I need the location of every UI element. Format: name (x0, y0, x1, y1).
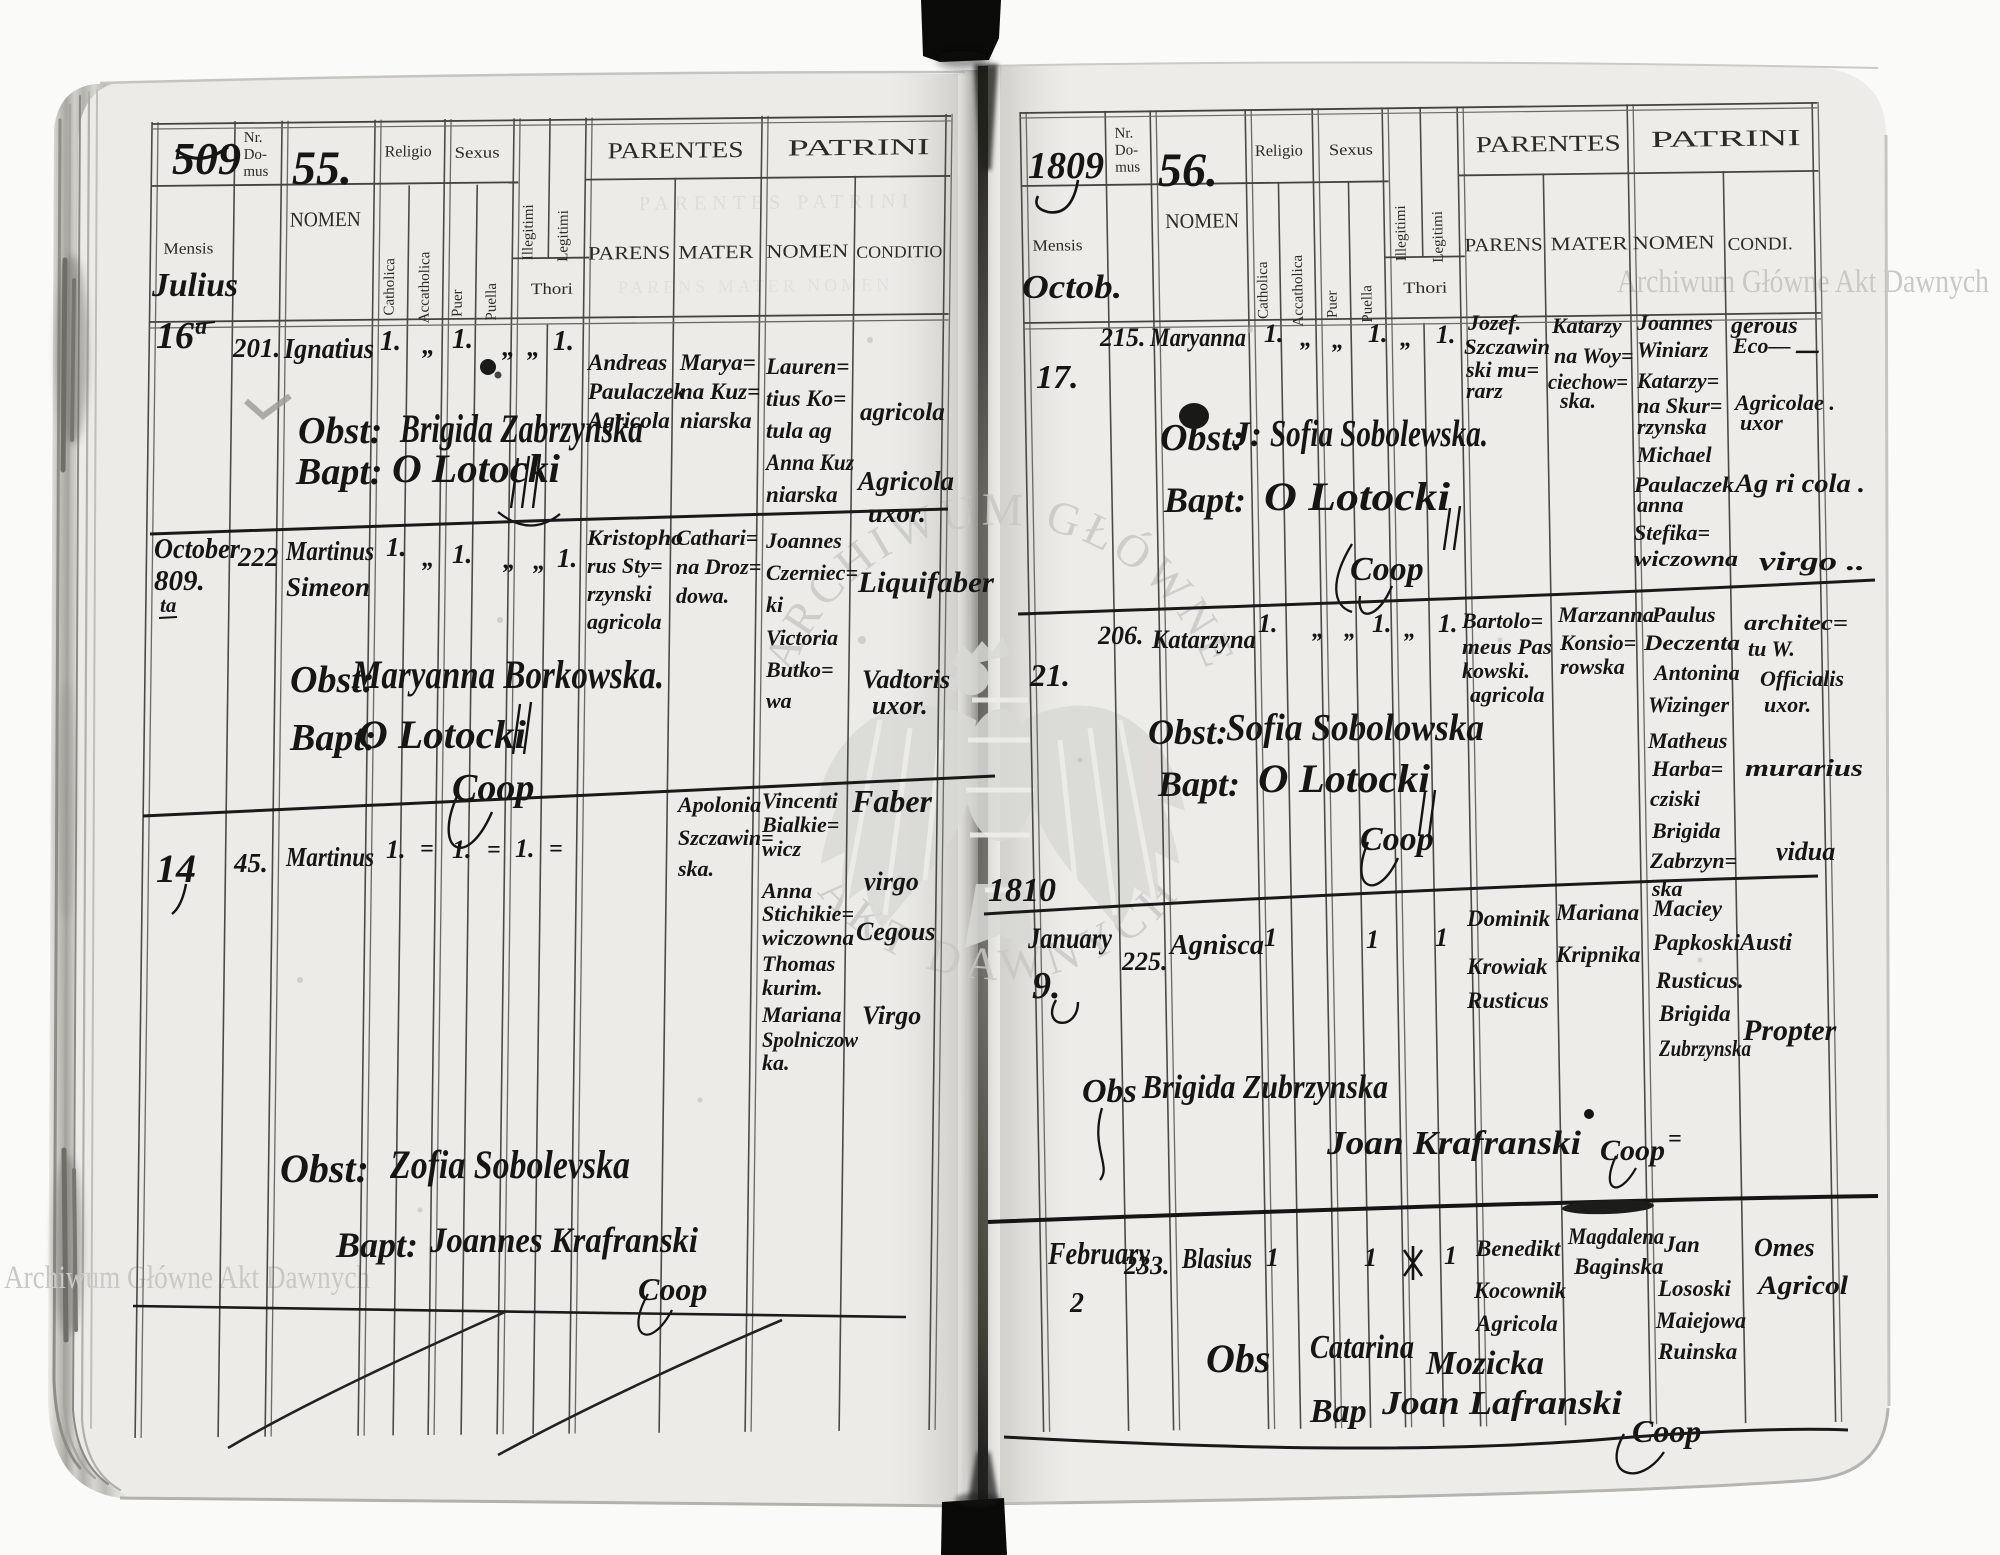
svg-text:Obs: Obs (1082, 1073, 1137, 1110)
svg-text:PARENS MATER NOMEN: PARENS MATER NOMEN (618, 274, 894, 297)
svg-text:Maryanna: Maryanna (1149, 323, 1246, 352)
svg-text:„: „ (1400, 326, 1412, 352)
svg-text:PARENS: PARENS (588, 243, 670, 265)
svg-text:Kripnika: Kripnika (1555, 942, 1640, 967)
svg-text:Puer: Puer (450, 289, 466, 317)
svg-text:1.: 1. (386, 835, 406, 864)
svg-text:Stichikie=: Stichikie= (762, 901, 854, 926)
svg-text:14: 14 (156, 846, 196, 891)
svg-text:Nr.: Nr. (244, 130, 263, 146)
svg-text:Jozef.: Jozef. (1467, 310, 1521, 335)
svg-text:1.: 1. (1368, 319, 1388, 348)
svg-text:kowski.: kowski. (1462, 658, 1530, 683)
svg-text:„: „ (1300, 326, 1312, 352)
svg-text:„: „ (422, 545, 435, 572)
svg-text:Zofia Sobolevska: Zofia Sobolevska (389, 1142, 630, 1187)
svg-text:Szczawin=: Szczawin= (678, 825, 774, 850)
svg-text:Illegitimi: Illegitimi (1393, 205, 1410, 261)
svg-text:21.: 21. (1029, 657, 1070, 693)
svg-text:Marya=: Marya= (679, 350, 756, 375)
svg-text:uxor.: uxor. (868, 498, 926, 528)
svg-text:Zabrzyn=: Zabrzyn= (1649, 848, 1737, 873)
svg-text:1.: 1. (553, 326, 574, 357)
svg-text:Szczawin: Szczawin (1464, 334, 1550, 359)
svg-text:Agricola: Agricola (856, 466, 954, 496)
svg-text:Blasius: Blasius (1181, 1244, 1252, 1275)
svg-text:Baginska: Baginska (1573, 1254, 1663, 1279)
svg-text:Bapt:: Bapt: (335, 1225, 418, 1265)
svg-text:agricola: agricola (587, 609, 662, 634)
svg-text:Cegous: Cegous (856, 917, 935, 946)
svg-text:Brigida Zubrzynska: Brigida Zubrzynska (1141, 1069, 1388, 1106)
svg-text:uxor.: uxor. (1764, 692, 1811, 717)
svg-text:Joannes Krafranski: Joannes Krafranski (429, 1220, 698, 1260)
svg-text:„: „ (502, 333, 515, 362)
svg-text:225.: 225. (1121, 947, 1168, 976)
svg-text:cziski: cziski (1650, 786, 1701, 811)
svg-text:Antonina: Antonina (1652, 660, 1740, 685)
svg-text:Mariana: Mariana (1555, 900, 1639, 925)
svg-text:Vadtoris: Vadtoris (862, 665, 950, 694)
svg-text:Nr.: Nr. (1114, 126, 1133, 142)
svg-text:Coop: Coop (638, 1271, 707, 1307)
svg-text:Czerniec=: Czerniec= (766, 560, 858, 585)
svg-text:NOMEN: NOMEN (1632, 232, 1715, 254)
svg-text:„: „ (527, 333, 540, 362)
svg-text:Bapt:: Bapt: (1163, 480, 1246, 520)
svg-text:16ª: 16ª (156, 315, 207, 357)
svg-text:Victoria: Victoria (766, 625, 838, 650)
svg-text:CONDITIO: CONDITIO (856, 242, 942, 262)
svg-text:201.: 201. (232, 333, 280, 363)
svg-text:uxor: uxor (1740, 410, 1783, 435)
svg-text:„: „ (1344, 617, 1356, 643)
svg-text:Matheus: Matheus (1647, 728, 1727, 753)
svg-text:45.: 45. (233, 848, 268, 878)
svg-text:Katarzyna: Katarzyna (1151, 625, 1256, 654)
svg-text:Propter: Propter (1742, 1014, 1837, 1047)
svg-text:Joannes: Joannes (765, 528, 842, 553)
svg-text:Apolonia: Apolonia (676, 792, 761, 817)
svg-text:Simeon: Simeon (286, 572, 370, 602)
svg-text:Do-: Do- (244, 147, 268, 163)
svg-text:1810: 1810 (988, 872, 1056, 909)
svg-text:wiczowna: wiczowna (762, 925, 854, 950)
svg-text:Deczenta: Deczenta (1643, 630, 1740, 655)
svg-text:January: January (1027, 922, 1112, 955)
svg-text:PARENTES: PARENTES (607, 137, 743, 163)
svg-text:Paulus: Paulus (1651, 602, 1716, 627)
svg-text:Officialis: Officialis (1760, 666, 1844, 691)
svg-text:1.: 1. (386, 532, 406, 562)
svg-text:Omes: Omes (1754, 1233, 1815, 1262)
svg-text:virgo: virgo (864, 867, 919, 896)
svg-text:1.: 1. (452, 324, 473, 355)
svg-text:meus Pas: meus Pas (1462, 634, 1552, 659)
svg-text:Puella: Puella (1359, 285, 1376, 323)
svg-text:Catholica: Catholica (1255, 261, 1272, 319)
svg-text:1: 1 (1264, 923, 1277, 952)
svg-text:dowa.: dowa. (676, 583, 729, 608)
svg-text:Martinus: Martinus (285, 842, 374, 872)
svg-text:wiczowna: wiczowna (1634, 546, 1738, 571)
svg-text:PATRINI: PATRINI (1651, 125, 1801, 152)
svg-text:Konsio=: Konsio= (1559, 630, 1636, 655)
svg-text:architec=: architec= (1744, 610, 1848, 635)
svg-text:Sexus: Sexus (1329, 142, 1373, 160)
svg-text:Kristopho: Kristopho (586, 525, 683, 550)
svg-text:Faber: Faber (851, 783, 933, 819)
svg-text:ta: ta (160, 593, 176, 617)
svg-text:1.: 1. (1372, 609, 1392, 638)
svg-text:Julius: Julius (151, 267, 238, 304)
svg-text:Puella: Puella (483, 283, 499, 321)
svg-text:Maryanna Borkowska.: Maryanna Borkowska. (351, 652, 664, 697)
svg-text:Ag ri cola .: Ag ri cola . (1733, 469, 1865, 498)
svg-text:Agnisca: Agnisca (1168, 930, 1264, 961)
svg-text:O Lotocki: O Lotocki (1264, 474, 1450, 519)
svg-text:niarska: niarska (680, 408, 752, 433)
svg-text:Coop: Coop (1600, 1134, 1665, 1167)
svg-text:PARENTES: PARENTES (1476, 130, 1621, 157)
svg-text:„: „ (1312, 617, 1324, 643)
svg-text:Brigida: Brigida (1651, 818, 1720, 843)
svg-text:Archiwum Główne Akt Dawnych: Archiwum Główne Akt Dawnych (1617, 264, 1989, 300)
svg-text:Michael: Michael (1636, 442, 1712, 467)
svg-text:Coop: Coop (452, 767, 534, 809)
svg-text:agricola: agricola (1470, 682, 1545, 707)
svg-text:Bialkie=: Bialkie= (761, 812, 839, 837)
svg-text:agricola: agricola (860, 399, 945, 426)
svg-text:Katarzy: Katarzy (1551, 313, 1622, 338)
svg-text:PARENTES PATRINI: PARENTES PATRINI (639, 190, 914, 215)
svg-text:Do-: Do- (1115, 143, 1139, 159)
svg-text:Coop: Coop (1360, 821, 1434, 858)
svg-text:niarska: niarska (766, 482, 838, 507)
svg-text:MATER: MATER (1550, 233, 1628, 255)
svg-text:PARENS: PARENS (1464, 234, 1542, 256)
svg-text:ka.: ka. (762, 1050, 790, 1075)
svg-text:Rusticus.: Rusticus. (1655, 968, 1744, 993)
svg-text:mus: mus (243, 164, 268, 180)
svg-text:Brigida Zabrzynska: Brigida Zabrzynska (399, 406, 643, 451)
svg-text:Sofia Sobolowska: Sofia Sobolowska (1226, 707, 1484, 749)
svg-text:Vincenti: Vincenti (762, 788, 839, 813)
svg-text:CONDI.: CONDI. (1727, 233, 1792, 254)
svg-text:Eco— ⎼: Eco— ⎼ (1732, 333, 1820, 358)
svg-text:„: „ (1404, 617, 1416, 643)
svg-text:O Lotocki: O Lotocki (358, 712, 526, 757)
svg-text:tula ag: tula ag (766, 418, 832, 443)
svg-text:Virgo: Virgo (862, 1001, 921, 1030)
svg-text:55.: 55. (292, 142, 352, 195)
svg-text:1809: 1809 (1028, 145, 1104, 187)
svg-text:Bap: Bap (1309, 1393, 1367, 1430)
svg-text:Martinus: Martinus (285, 536, 374, 566)
svg-text:Archiwum Główne Akt Dawnych: Archiwum Główne Akt Dawnych (4, 1260, 370, 1296)
svg-text:murarius: murarius (1745, 756, 1863, 782)
svg-text:MATER: MATER (678, 242, 754, 264)
svg-text:„: „ (503, 547, 516, 574)
svg-text:Maiejowa: Maiejowa (1655, 1308, 1746, 1333)
svg-text:Sexus: Sexus (455, 144, 500, 161)
svg-text:Obs: Obs (1206, 1336, 1270, 1381)
svg-text:na Droz=: na Droz= (676, 554, 761, 579)
svg-text:Obst:: Obst: (280, 1146, 369, 1191)
svg-text:NOMEN: NOMEN (1165, 208, 1239, 233)
svg-text:Jan: Jan (1663, 1232, 1700, 1257)
svg-text:tu W.: tu W. (1748, 636, 1795, 661)
svg-text:O Lotocki: O Lotocki (1258, 756, 1430, 801)
svg-text:Ignatius: Ignatius (283, 334, 374, 365)
svg-text:Thomas: Thomas (762, 951, 835, 976)
svg-text:Austi: Austi (1738, 930, 1792, 956)
svg-text:Mozicka: Mozicka (1425, 1345, 1544, 1382)
svg-text:Joan Lafranski: Joan Lafranski (1381, 1385, 1623, 1422)
svg-text:Obst:: Obst: (298, 410, 382, 452)
svg-text:Accatholica: Accatholica (416, 251, 433, 323)
svg-text:Lososki: Lososki (1657, 1276, 1731, 1301)
svg-text:Sofia Sobolewska.: Sofia Sobolewska. (1270, 413, 1488, 455)
svg-text:rzynski: rzynski (587, 581, 653, 606)
svg-text:1.: 1. (557, 543, 577, 573)
svg-text:Legitimi: Legitimi (1430, 211, 1447, 263)
svg-text:Papkoski: Papkoski (1652, 930, 1741, 955)
svg-text:Illegitimi: Illegitimi (520, 204, 537, 260)
svg-text:Bapt:: Bapt: (1157, 764, 1240, 804)
svg-text:Stefika=: Stefika= (1634, 520, 1710, 545)
svg-text:56.: 56. (1158, 144, 1218, 197)
svg-text:1.: 1. (1438, 609, 1458, 638)
svg-text:Magdalena: Magdalena (1567, 1224, 1664, 1249)
svg-text:October: October (154, 533, 241, 565)
svg-text:17.: 17. (1036, 359, 1079, 396)
svg-text:Agricol: Agricol (1756, 1271, 1849, 1300)
svg-text:rzynska: rzynska (1637, 414, 1707, 439)
svg-text:Paulaczek: Paulaczek (587, 379, 686, 404)
svg-text:Kocownik: Kocownik (1473, 1278, 1566, 1303)
svg-text:Coop: Coop (1632, 1413, 1701, 1449)
svg-text:mus: mus (1115, 159, 1140, 175)
svg-text:tius Ko=: tius Ko= (766, 386, 846, 411)
svg-text:206.: 206. (1097, 621, 1144, 650)
svg-text:Harba=: Harba= (1651, 756, 1723, 781)
svg-text:Bartolo=: Bartolo= (1461, 608, 1543, 633)
svg-text:1.: 1. (1436, 320, 1456, 349)
svg-text:1: 1 (1435, 923, 1448, 952)
svg-text:na Kuz=: na Kuz= (680, 379, 760, 404)
svg-text:Obst:: Obst: (1148, 712, 1228, 752)
svg-text:Mensis: Mensis (163, 240, 213, 258)
svg-text:215.: 215. (1099, 323, 1146, 352)
svg-text:Wizinger: Wizinger (1648, 692, 1730, 717)
svg-text:1.: 1. (1264, 319, 1284, 348)
svg-text:Winiarz: Winiarz (1637, 337, 1709, 362)
svg-text:NOMEN: NOMEN (290, 207, 361, 232)
svg-text:Catarina: Catarina (1310, 1329, 1414, 1366)
svg-text:ska.: ska. (677, 856, 714, 881)
svg-text:Brigida: Brigida (1658, 1001, 1731, 1026)
svg-text:ska.: ska. (1559, 388, 1596, 413)
svg-text:na Woy=: na Woy= (1554, 343, 1634, 368)
svg-text:Butko=: Butko= (765, 657, 834, 682)
svg-text:1.: 1. (1258, 609, 1278, 638)
svg-text:Agricola: Agricola (1474, 1311, 1558, 1336)
svg-text:Religio: Religio (1255, 142, 1303, 160)
svg-text:Anna: Anna (760, 878, 812, 903)
svg-text:Zubrzynska: Zubrzynska (1658, 1036, 1751, 1061)
svg-text:J:: J: (1231, 414, 1262, 454)
svg-text:Rusticus: Rusticus (1466, 988, 1549, 1013)
svg-text:1: 1 (1266, 1243, 1279, 1272)
svg-text:1.: 1. (452, 835, 472, 864)
svg-text:Legitimi: Legitimi (555, 210, 572, 262)
svg-text:wa: wa (766, 688, 792, 713)
svg-text:Benedikt: Benedikt (1475, 1236, 1561, 1261)
svg-text:ki: ki (766, 592, 784, 617)
svg-text:=: = (1668, 1126, 1682, 1152)
svg-text:vidua: vidua (1776, 837, 1835, 866)
svg-text:Thori: Thori (531, 281, 574, 298)
svg-text:rus Sty=: rus Sty= (587, 553, 663, 578)
svg-text:kurim.: kurim. (762, 975, 823, 1000)
svg-text:O Lotocki: O Lotocki (392, 446, 560, 491)
svg-text:virgo ..: virgo .. (1759, 547, 1865, 576)
svg-text:Cathari=: Cathari= (676, 525, 758, 550)
svg-text:rowska: rowska (1560, 654, 1625, 679)
svg-text:222: 222 (237, 542, 279, 572)
svg-text:Maciey: Maciey (1652, 896, 1723, 921)
svg-text:Krowiak: Krowiak (1466, 954, 1548, 979)
svg-text:1: 1 (1364, 1243, 1377, 1272)
svg-text:Mariana: Mariana (761, 1002, 841, 1027)
svg-text:PATRINI: PATRINI (787, 134, 929, 160)
svg-text:Anna Kuz: Anna Kuz (764, 450, 854, 475)
svg-text:1: 1 (1444, 1241, 1457, 1270)
svg-text:Ruinska: Ruinska (1657, 1339, 1737, 1364)
svg-text:Lauren=: Lauren= (765, 354, 849, 379)
svg-text:rarz: rarz (1466, 378, 1503, 403)
svg-text:Andreas: Andreas (586, 350, 667, 375)
svg-text:Bapt:: Bapt: (295, 451, 383, 493)
svg-text:1.: 1. (452, 539, 472, 569)
svg-text:Catholica: Catholica (382, 258, 399, 316)
svg-text:Religio: Religio (385, 143, 432, 160)
svg-text:233.: 233. (1123, 1251, 1170, 1280)
svg-text:uxor.: uxor. (872, 691, 928, 720)
svg-text:Dominik: Dominik (1466, 906, 1551, 931)
svg-text:Katarzy=: Katarzy= (1636, 368, 1719, 393)
svg-text:1: 1 (1366, 925, 1379, 954)
svg-text:wicz: wicz (762, 836, 802, 861)
svg-text:„: „ (422, 331, 435, 360)
svg-text:„: „ (533, 548, 546, 575)
svg-text:Octob.: Octob. (1022, 269, 1122, 306)
svg-text:„: „ (1332, 328, 1344, 354)
svg-text:Coop: Coop (1350, 551, 1424, 588)
svg-text:Joan Krafranski: Joan Krafranski (1326, 1125, 1582, 1162)
svg-text:=: = (549, 836, 563, 862)
svg-text:Spolniczow: Spolniczow (762, 1027, 858, 1052)
svg-text:Mensis: Mensis (1032, 237, 1082, 255)
svg-text:Accatholica: Accatholica (1290, 254, 1307, 326)
svg-text:=: = (420, 836, 434, 862)
svg-text:anna: anna (1637, 492, 1683, 517)
svg-text:NOMEN: NOMEN (766, 241, 849, 263)
svg-text:Puer: Puer (1324, 290, 1340, 318)
svg-text:1.: 1. (515, 834, 535, 863)
svg-text:=: = (487, 837, 501, 863)
svg-text:Joannes: Joannes (1636, 310, 1713, 335)
svg-text:Liquifaber: Liquifaber (857, 566, 994, 599)
svg-text:Thori: Thori (1403, 280, 1448, 298)
svg-text:1.: 1. (380, 326, 401, 357)
svg-text:2: 2 (1069, 1288, 1084, 1319)
svg-text:Marzanna: Marzanna (1557, 602, 1654, 627)
